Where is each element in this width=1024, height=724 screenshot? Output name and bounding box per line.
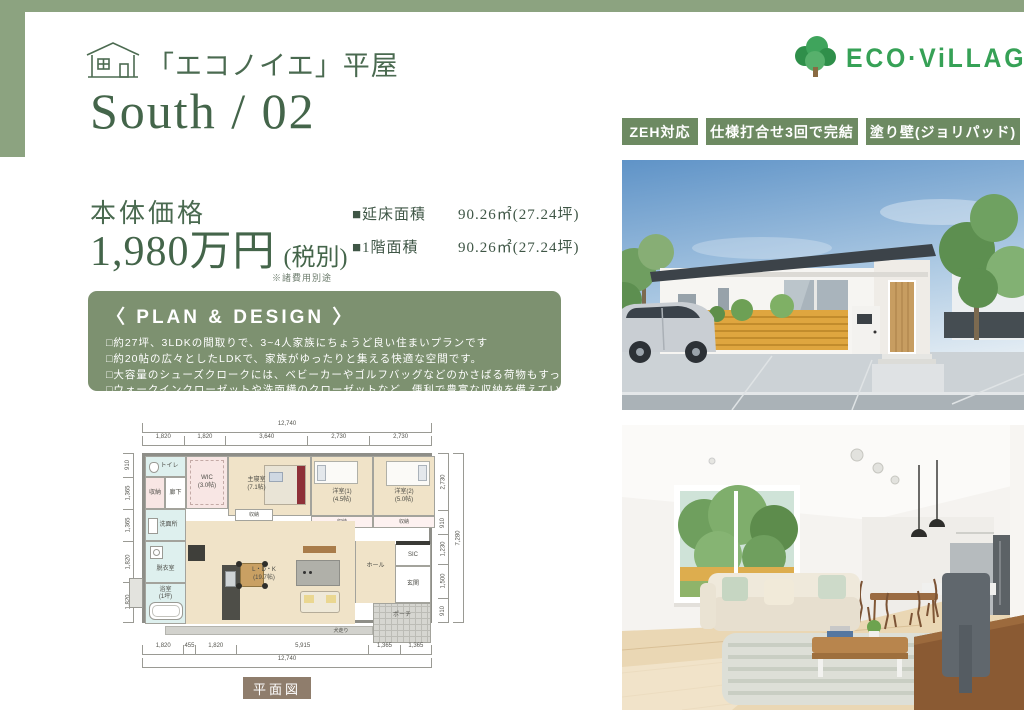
room-master-bedroom: 主寝室 (7.1帖): [228, 456, 311, 516]
floor-plan: 12,740 1,820 1,820 3,640 2,730 2,730 910…: [105, 423, 500, 685]
dim-bottom-total: 12,740: [142, 658, 432, 668]
plan-design-item: □大容量のシューズクロークには、ベビーカーやゴルフバッグなどのかさばる荷物もすっ…: [106, 368, 543, 384]
area-total-label: ■延床面積: [352, 203, 444, 224]
floor-plan-caption: 平面図: [243, 677, 311, 699]
room-sic: SIC: [395, 544, 431, 566]
water-heater: [129, 578, 143, 608]
price-amount: 1,980万円: [90, 217, 276, 278]
room-bedroom2: 洋室(2) (5.0帖): [373, 456, 435, 516]
plan-design-items: □約27坪、3LDKの間取りで、3~4人家族にちょうど良い住まいプランです □約…: [106, 336, 543, 399]
neighbor-fence: [944, 312, 1024, 338]
dim-bottom-segments: 1,820 455 1,820 5,915 1,365 1,365: [142, 645, 432, 655]
price-row: 1,980万円 (税別): [90, 217, 348, 278]
sideboard: [303, 546, 336, 553]
area-total-value: 90.26㎡(27.24坪): [458, 203, 580, 224]
kitchen-island: [296, 560, 340, 586]
bottom-accent-bar: [0, 0, 1024, 12]
left-accent-bar: [0, 0, 25, 157]
bathtub: [149, 602, 183, 620]
plan-design-box: 〈 PLAN & DESIGN 〉 □約27坪、3LDKの間取りで、3~4人家族…: [88, 291, 561, 391]
shrub: [731, 299, 753, 321]
room-hall: ホール: [355, 541, 395, 603]
house-icon: [86, 40, 140, 85]
closet-master: 収納: [235, 509, 273, 521]
badge-zeh: ZEH対応: [622, 118, 698, 145]
room-entrance: 玄関: [395, 566, 431, 603]
area-first-floor-label: ■1階面積: [352, 236, 444, 257]
room-toilet: トイレ: [145, 456, 186, 477]
logo-text: ECO·ViLLAGE: [846, 43, 1024, 74]
area-row-first-floor: ■1階面積 90.26㎡(27.24坪): [352, 236, 580, 257]
closet-bedroom2: 収納: [373, 516, 435, 528]
area-row-total: ■延床面積 90.26㎡(27.24坪): [352, 203, 580, 224]
room-washroom: 洗面所: [145, 509, 186, 541]
dim-top-total: 12,740: [142, 423, 432, 433]
tree-icon: [790, 34, 838, 83]
shrub: [770, 294, 794, 318]
series-title: 「エコノイエ」平屋: [147, 44, 399, 83]
porch: ポーチ: [373, 603, 431, 643]
plan-design-item: □ウォークインクローゼットや洗面横のクローゼットなど、便利で豊富な収納を備えてい…: [106, 383, 543, 399]
front-door: [888, 280, 916, 354]
price-disclaimer: ※諸費用別途: [180, 271, 332, 284]
flyer-page: { "colors": { "accent_green": "#8ca380",…: [0, 0, 1024, 724]
dim-top-segments: 1,820 1,820 3,640 2,730 2,730: [142, 436, 432, 446]
plan-body: トイレ 収納 廊下 WIC (3.0帖) 主寝室 (7.1帖): [142, 453, 432, 623]
plan-design-title: 〈 PLAN & DESIGN 〉: [106, 302, 543, 329]
room-bedroom1: 洋室(1) (4.5帖): [311, 456, 373, 516]
price-tax-note: (税別): [284, 237, 348, 272]
plan-design-item: □約27坪、3LDKの間取りで、3~4人家族にちょうど良い住まいプランです: [106, 336, 543, 352]
right-wall: [1010, 425, 1024, 625]
badge-wall: 塗り壁(ジョリパッド): [866, 118, 1020, 145]
washing-machine: [150, 546, 163, 559]
bedroom1-bed: [314, 461, 358, 484]
room-bath: 浴室 (1坪): [145, 583, 186, 624]
sofa: [700, 573, 860, 631]
dim-right-total: 7,280: [453, 453, 464, 623]
apron-strip: 犬走り: [165, 626, 373, 635]
bedroom2-bed: [386, 461, 430, 486]
area-spec-list: ■延床面積 90.26㎡(27.24坪) ■1階面積 90.26㎡(27.24坪…: [352, 203, 580, 257]
room-ldk: L・D・K (19.7帖): [186, 521, 355, 624]
refrigerator: [188, 545, 205, 561]
gate-pillar: [852, 306, 880, 354]
company-logo: ECO·ViLLAGE: [790, 34, 1024, 83]
sofa: [300, 591, 340, 613]
dim-right-segments: 2,730 910 1,230 1,500 910: [438, 453, 449, 623]
room-storage: 収納: [145, 477, 165, 509]
room-dressing: 脱衣室: [145, 541, 186, 583]
model-name: South / 02: [90, 82, 316, 140]
dining-chair: [236, 583, 242, 589]
area-first-floor-value: 90.26㎡(27.24坪): [458, 236, 580, 257]
exterior-photo: [622, 160, 1024, 410]
tv: [942, 573, 990, 693]
interior-photo: [622, 425, 1024, 710]
dining-chair: [262, 583, 268, 589]
badge-meetings: 仕様打合せ3回で完結: [706, 118, 858, 145]
plan-design-item: □約20帖の広々としたLDKで、家族がゆったりと集える快適な空間です。: [106, 352, 543, 368]
road: [622, 395, 1024, 410]
room-hallway: 廊下: [165, 477, 186, 509]
